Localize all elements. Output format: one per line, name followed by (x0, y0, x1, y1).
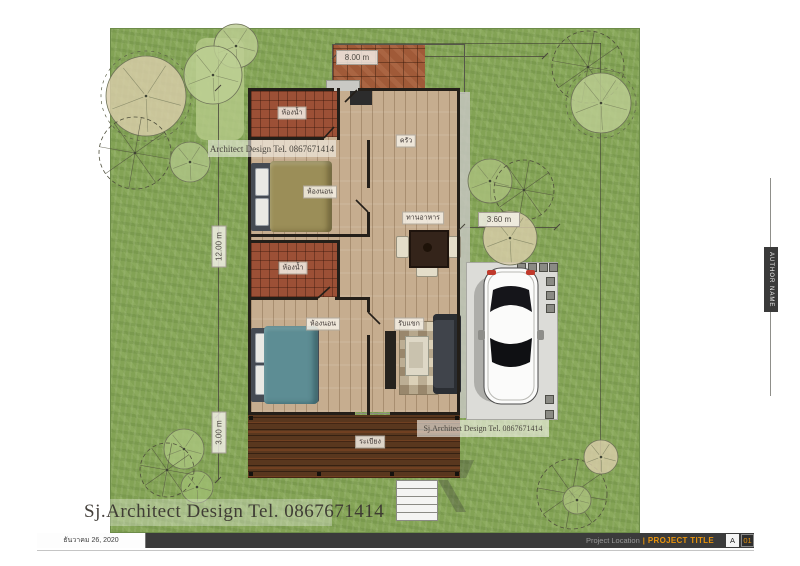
watermark-upper: Architect Design Tel. 0867671414 (208, 140, 336, 157)
project-location: Project Location (586, 536, 640, 545)
room-label-bedroom-top: ห้องนอน (303, 186, 337, 199)
caption-divider: | (643, 536, 645, 545)
project-caption: Project Location | PROJECT TITLE (586, 533, 714, 548)
stepping-stone (546, 291, 555, 300)
room-label-dining: ทานอาหาร (402, 212, 444, 225)
title-bar: ธันวาคม 26, 2020 Project Location | PROJ… (37, 533, 754, 548)
room-label-bathroom-middle: ห้องน้ำ (279, 262, 308, 275)
dimension-length: 12.00 m (212, 226, 227, 268)
deck-post (317, 472, 321, 476)
watermark-bottom-text: Sj.Architect Design Tel. 0867671414 (84, 501, 384, 523)
deck-post (455, 472, 459, 476)
tv-console (385, 331, 396, 389)
pillow (255, 198, 269, 226)
room-label-living: รับแขก (394, 318, 424, 331)
author-box: AUTHOR NAME (764, 247, 778, 312)
wall (248, 234, 370, 237)
entry-cabinet (350, 91, 372, 105)
wall (337, 240, 340, 300)
wall (390, 412, 460, 415)
stepping-stone (546, 304, 555, 313)
wall (248, 240, 340, 243)
wall (248, 412, 355, 415)
sheet-number: 01 (741, 534, 754, 547)
room-label-kitchen: ครัว (396, 135, 416, 148)
stair-tread (396, 505, 438, 513)
deck-post (249, 416, 253, 420)
sliding-door (356, 413, 390, 414)
watermark-middle: Sj.Architect Design Tel. 0867671414 (417, 420, 549, 437)
drawing-sheet: ห้องน้ำ ห้องนอน ครัว ทานอาหาร ห้องน้ำ ห้… (0, 0, 800, 566)
deck-post (249, 472, 253, 476)
wall (367, 300, 370, 312)
date-box: ธันวาคม 26, 2020 (37, 533, 146, 548)
hedge-row (196, 38, 244, 140)
stair-tread (396, 480, 438, 489)
stair-tread (396, 489, 438, 497)
stepping-stone (549, 263, 558, 272)
project-title: PROJECT TITLE (648, 536, 714, 545)
sheet-border-line (37, 550, 754, 551)
boundary-line-right (600, 43, 601, 471)
wall (457, 88, 460, 415)
wall (248, 88, 334, 91)
room-label-bedroom-bottom: ห้องนอน (306, 318, 340, 331)
wall (337, 88, 340, 140)
stepping-stone (539, 263, 548, 272)
stepping-stone (528, 263, 537, 272)
table-centerpiece (423, 243, 432, 252)
dining-chair (396, 236, 409, 258)
dimension-parking: 3.60 m (478, 212, 520, 227)
sheet-letter: A (726, 534, 739, 547)
dimension-terrace: 3.00 m (212, 412, 227, 454)
wall (367, 335, 370, 415)
deck-post (390, 472, 394, 476)
stair-tread (396, 497, 438, 505)
stairs (396, 480, 438, 520)
wall (367, 140, 370, 188)
dimension-line-parking (462, 227, 557, 228)
pillow (255, 168, 269, 196)
wall (248, 297, 318, 300)
wall (358, 88, 460, 91)
wall (335, 297, 370, 300)
stepping-stone (545, 395, 554, 404)
stair-tread (396, 513, 438, 521)
stepping-stone (545, 410, 554, 419)
room-label-terrace: ระเบียง (355, 436, 385, 449)
dimension-width: 8.00 m (336, 50, 378, 65)
coffee-table-top (409, 342, 423, 368)
room-label-bathroom-top: ห้องน้ำ (278, 107, 307, 120)
stepping-stone (517, 263, 526, 272)
wall (367, 212, 370, 237)
author-name: AUTHOR NAME (768, 252, 774, 307)
watermark-middle-text: Sj.Architect Design Tel. 0867671414 (423, 424, 542, 433)
watermark-upper-text: Architect Design Tel. 0867671414 (210, 144, 334, 154)
blanket (264, 326, 318, 404)
stepping-stone (546, 277, 555, 286)
